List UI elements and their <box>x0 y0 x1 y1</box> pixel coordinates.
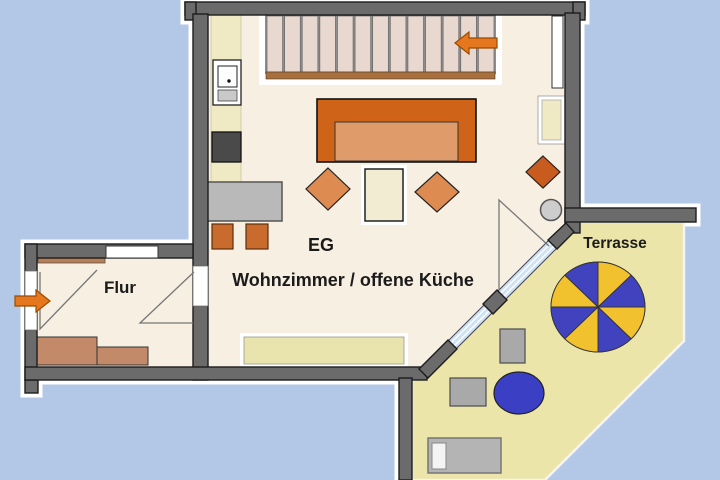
radiator <box>552 16 563 88</box>
sofa <box>317 99 476 162</box>
stove <box>212 132 241 162</box>
stair-tread <box>426 16 442 72</box>
stair-bottom-edge <box>266 72 495 79</box>
parasol <box>551 262 645 352</box>
kitchen-island <box>206 182 282 221</box>
lounger-pillow <box>432 443 446 469</box>
stair-tread <box>285 16 301 72</box>
hall-window <box>106 246 158 258</box>
bar-stool <box>246 224 268 249</box>
stair-tread <box>408 16 424 72</box>
stair-tread <box>267 16 283 72</box>
terrace-table <box>494 372 544 414</box>
stair-tread <box>355 16 371 72</box>
stair-tread <box>337 16 353 72</box>
stair-tread <box>320 16 336 72</box>
stair-tread <box>390 16 406 72</box>
hall-cabinet <box>35 337 97 365</box>
sink-drainer <box>218 90 237 101</box>
kitchen-sink <box>213 60 241 105</box>
hall-living-door-opening <box>193 266 208 306</box>
wall-cabinet <box>538 96 565 144</box>
living-room-label: Wohnzimmer / offene Küche <box>232 270 474 290</box>
floor-plan-drawing: EG Wohnzimmer / offene Küche Flur Terras… <box>0 0 720 480</box>
terrace-chair <box>500 329 525 363</box>
parasol-wedges <box>551 262 645 352</box>
floor-plan-canvas: EG Wohnzimmer / offene Küche Flur Terras… <box>0 0 720 480</box>
floor-level-label: EG <box>308 235 334 255</box>
terrace-label: Terrasse <box>583 235 647 252</box>
stair-tread <box>373 16 389 72</box>
sideboard <box>240 333 408 368</box>
coffee-table <box>361 165 407 225</box>
terrace-chair <box>450 378 486 406</box>
round-object <box>541 200 562 221</box>
stair-tread <box>302 16 318 72</box>
hall-cabinet-low <box>97 347 148 365</box>
hallway-label: Flur <box>104 278 136 297</box>
sun-lounger <box>428 438 501 473</box>
bar-stool <box>212 224 233 249</box>
sink-drain <box>227 79 230 82</box>
